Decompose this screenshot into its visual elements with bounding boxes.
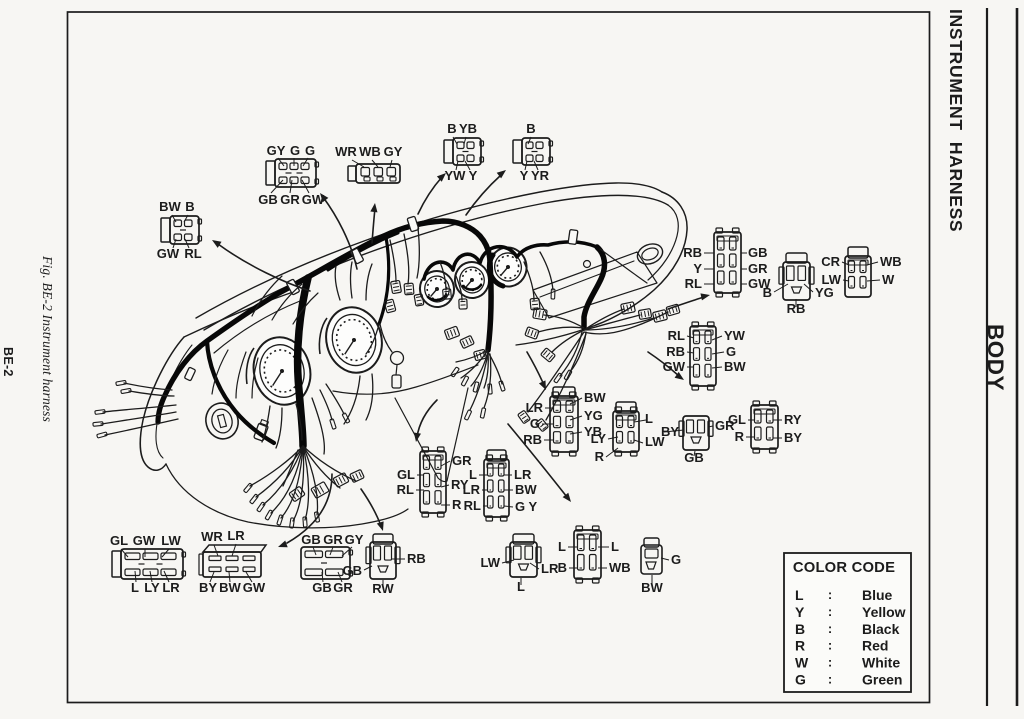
svg-text:GY: GY: [345, 532, 364, 547]
svg-text:LY: LY: [591, 431, 607, 446]
svg-text:B: B: [185, 199, 194, 214]
svg-text:GR: GR: [333, 580, 353, 595]
svg-text:B: B: [558, 560, 567, 575]
svg-text:BODY: BODY: [983, 324, 1008, 391]
svg-text:WB: WB: [359, 144, 381, 159]
svg-text:RL: RL: [464, 498, 481, 513]
svg-text:Red: Red: [862, 638, 888, 654]
svg-text:GB: GB: [343, 563, 363, 578]
svg-text:YG: YG: [815, 285, 834, 300]
svg-text:G: G: [530, 416, 540, 431]
svg-text:Y: Y: [795, 604, 805, 620]
svg-text:GW: GW: [133, 533, 156, 548]
svg-text:WR: WR: [201, 529, 223, 544]
svg-text::: :: [828, 655, 832, 670]
svg-text:Black: Black: [862, 621, 900, 637]
svg-text:W: W: [795, 655, 809, 671]
svg-text:Yellow: Yellow: [862, 604, 906, 620]
svg-text:LR: LR: [541, 561, 559, 576]
svg-text:B: B: [447, 121, 456, 136]
svg-text:GB: GB: [312, 580, 332, 595]
svg-text:GW: GW: [157, 246, 180, 261]
svg-text::: :: [828, 621, 832, 636]
svg-text:B: B: [795, 621, 805, 637]
svg-text:LR: LR: [227, 528, 245, 543]
svg-text:WB: WB: [609, 560, 631, 575]
svg-text:GR: GR: [748, 261, 768, 276]
svg-text:G: G: [290, 143, 300, 158]
svg-text:B: B: [763, 285, 772, 300]
svg-text:GR: GR: [323, 532, 343, 547]
svg-text:L: L: [611, 539, 619, 554]
svg-text:LR: LR: [463, 482, 481, 497]
svg-text:GL: GL: [397, 467, 415, 482]
svg-text:YW: YW: [445, 168, 467, 183]
svg-text:LR: LR: [162, 580, 180, 595]
svg-text:YG: YG: [584, 408, 603, 423]
svg-text:GY: GY: [384, 144, 403, 159]
svg-text:R: R: [595, 449, 605, 464]
svg-text::: :: [828, 587, 832, 602]
svg-text:BW: BW: [219, 580, 241, 595]
svg-text::: :: [828, 672, 832, 687]
svg-text:Y: Y: [520, 168, 529, 183]
svg-text::: :: [828, 638, 832, 653]
svg-text:GW: GW: [302, 192, 325, 207]
svg-text:WR: WR: [335, 144, 357, 159]
svg-text:LY: LY: [144, 580, 160, 595]
svg-text:L: L: [469, 467, 477, 482]
svg-text:BY: BY: [199, 580, 217, 595]
svg-text:LR: LR: [514, 467, 532, 482]
svg-text:R: R: [452, 497, 462, 512]
svg-text:RB: RB: [683, 245, 702, 260]
svg-text:R: R: [735, 429, 745, 444]
svg-text:GY: GY: [267, 143, 286, 158]
svg-text:L: L: [558, 539, 566, 554]
svg-text:G: G: [671, 552, 681, 567]
svg-text:G Y: G Y: [515, 499, 537, 514]
svg-text:LW: LW: [161, 533, 181, 548]
svg-text:INSTRUMENT HARNESS: INSTRUMENT HARNESS: [946, 9, 966, 232]
svg-text:COLOR CODE: COLOR CODE: [793, 560, 895, 576]
svg-text:L: L: [645, 411, 653, 426]
svg-text:RL: RL: [184, 246, 201, 261]
svg-text:LW: LW: [481, 555, 501, 570]
svg-text:BY: BY: [784, 430, 802, 445]
svg-text:GL: GL: [110, 533, 128, 548]
svg-text:L: L: [795, 587, 804, 603]
svg-text:GW: GW: [663, 359, 686, 374]
svg-text:GR: GR: [715, 418, 735, 433]
svg-text:G: G: [305, 143, 315, 158]
svg-text:GB: GB: [684, 450, 704, 465]
svg-text:Y: Y: [693, 261, 702, 276]
svg-text:Blue: Blue: [862, 587, 893, 603]
svg-text:RL: RL: [685, 276, 702, 291]
svg-text:GW: GW: [243, 580, 266, 595]
svg-text:RB: RB: [407, 551, 426, 566]
svg-text:B: B: [526, 121, 535, 136]
svg-text:Y: Y: [469, 168, 478, 183]
svg-text::: :: [828, 604, 832, 619]
svg-text:CR: CR: [821, 254, 840, 269]
svg-text:BW: BW: [159, 199, 181, 214]
svg-text:GR: GR: [452, 453, 472, 468]
svg-text:GB: GB: [748, 245, 768, 260]
svg-text:WB: WB: [880, 254, 902, 269]
svg-text:BE-2: BE-2: [1, 347, 15, 377]
svg-text:GB: GB: [258, 192, 278, 207]
svg-text:GR: GR: [280, 192, 300, 207]
svg-text:Green: Green: [862, 672, 902, 688]
svg-text:RB: RB: [523, 432, 542, 447]
svg-text:YR: YR: [531, 168, 550, 183]
svg-text:RL: RL: [397, 482, 414, 497]
svg-text:Fig. BE-2 Instrument harness: Fig. BE-2 Instrument harness: [40, 255, 55, 422]
svg-text:RY: RY: [784, 412, 802, 427]
svg-text:YB: YB: [459, 121, 477, 136]
svg-text:GB: GB: [301, 532, 321, 547]
svg-text:BW: BW: [724, 359, 746, 374]
svg-text:YW: YW: [724, 328, 746, 343]
svg-text:L: L: [131, 580, 139, 595]
svg-text:G: G: [795, 672, 806, 688]
svg-text:RB: RB: [666, 344, 685, 359]
svg-text:BW: BW: [515, 482, 537, 497]
svg-text:W: W: [882, 272, 895, 287]
svg-text:RL: RL: [668, 328, 685, 343]
svg-text:LR: LR: [526, 400, 544, 415]
svg-text:BW: BW: [584, 390, 606, 405]
svg-text:R: R: [795, 638, 805, 654]
svg-text:White: White: [862, 655, 900, 671]
svg-text:G: G: [726, 344, 736, 359]
